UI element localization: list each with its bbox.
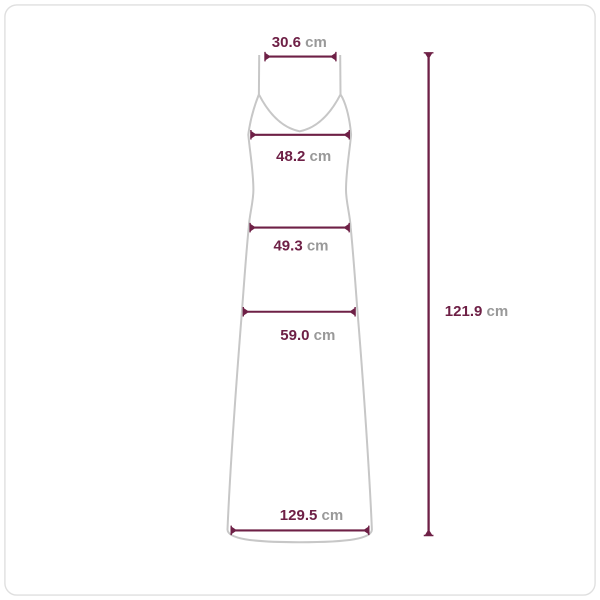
- svg-text:49.3 cm: 49.3 cm: [273, 238, 328, 255]
- svg-text:30.6 cm: 30.6 cm: [272, 34, 327, 51]
- svg-text:59.0 cm: 59.0 cm: [280, 327, 335, 344]
- svg-text:129.5 cm: 129.5 cm: [280, 507, 343, 524]
- svg-text:121.9 cm: 121.9 cm: [445, 303, 508, 320]
- svg-text:48.2 cm: 48.2 cm: [276, 148, 331, 165]
